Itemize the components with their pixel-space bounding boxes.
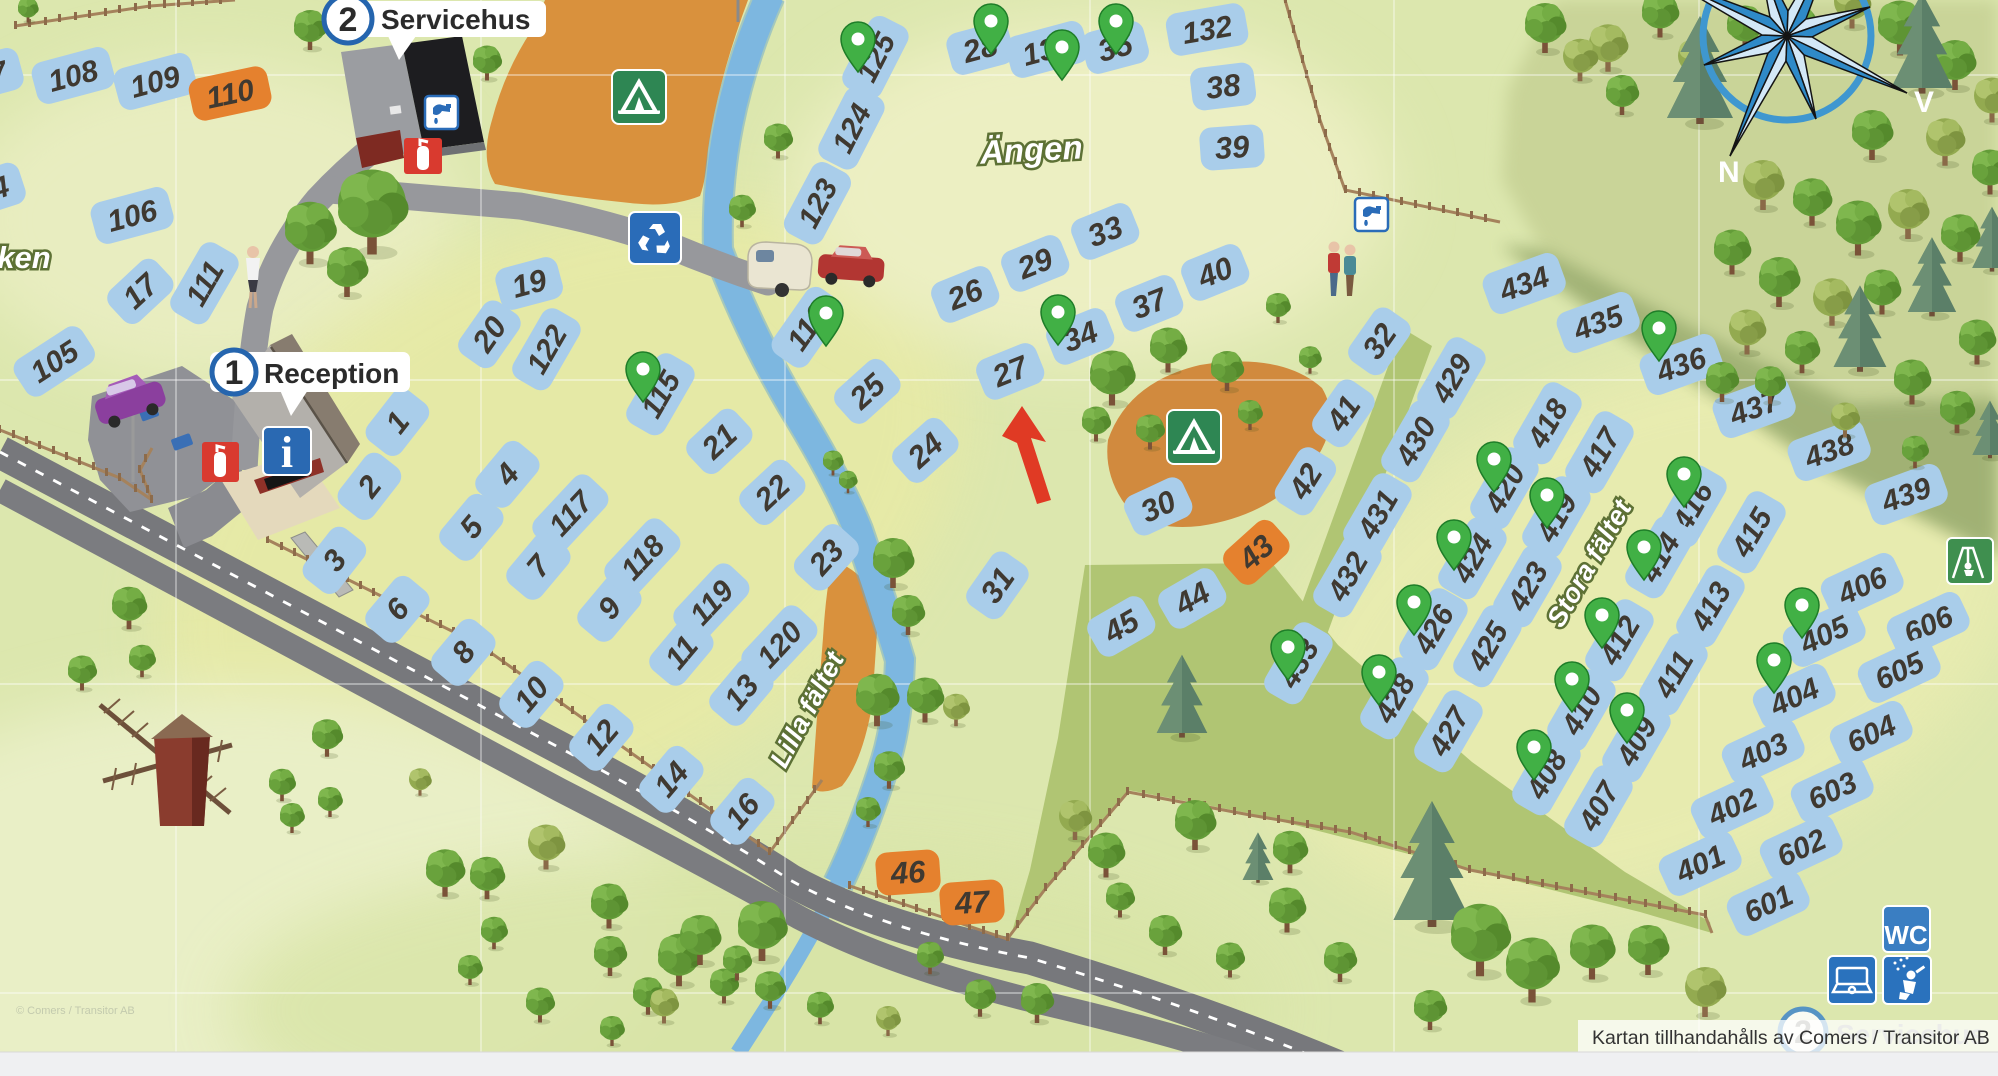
svg-text:2: 2 <box>339 1 358 39</box>
svg-text:Ängen: Ängen <box>978 128 1083 170</box>
svg-text:© Comers / Transitor AB: © Comers / Transitor AB <box>16 1005 135 1017</box>
svg-text:47: 47 <box>953 884 993 922</box>
svg-text:1: 1 <box>225 354 244 392</box>
svg-text:46: 46 <box>889 854 928 891</box>
svg-text:ken: ken <box>0 240 51 275</box>
svg-text:Reception: Reception <box>264 358 399 389</box>
svg-text:i: i <box>281 428 293 477</box>
svg-text:Servicehus: Servicehus <box>381 4 530 35</box>
svg-text:Kartan tillhandahålls av Comer: Kartan tillhandahålls av Comers / Transi… <box>1592 1027 1990 1049</box>
svg-text:V: V <box>1914 86 1934 119</box>
svg-text:N: N <box>1718 156 1740 189</box>
svg-text:38: 38 <box>1204 67 1243 106</box>
svg-text:39: 39 <box>1214 129 1252 166</box>
svg-text:WC: WC <box>1884 920 1928 950</box>
